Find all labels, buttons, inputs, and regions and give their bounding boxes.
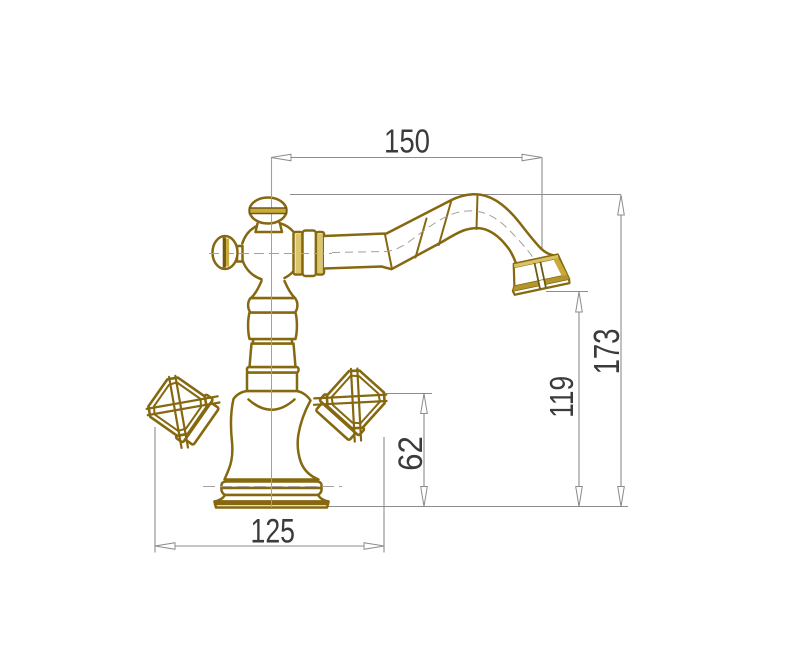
svg-text:119: 119 bbox=[544, 376, 581, 418]
svg-text:150: 150 bbox=[384, 122, 430, 159]
svg-text:62: 62 bbox=[392, 436, 430, 471]
svg-text:125: 125 bbox=[251, 513, 296, 551]
svg-text:173: 173 bbox=[586, 328, 627, 374]
